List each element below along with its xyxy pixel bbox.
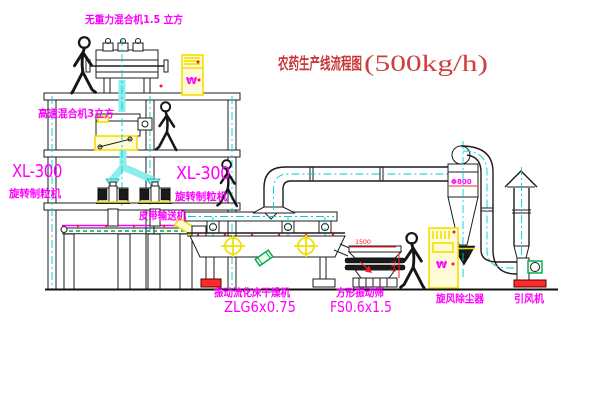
person-figure bbox=[401, 233, 424, 288]
granulator-left bbox=[96, 182, 130, 204]
dim-length: 1500 bbox=[355, 238, 371, 246]
label-granulator-left-name: 旋转制粒机 bbox=[8, 187, 61, 200]
drawing-canvas: ₩ bbox=[0, 0, 600, 403]
label-weightless-mixer: 无重力混合机1.5 立方 bbox=[84, 13, 183, 26]
discharge-chute-left bbox=[108, 209, 118, 226]
person-figure bbox=[72, 37, 96, 93]
cyclone-diameter-label: Φ800 bbox=[451, 178, 472, 186]
diagram-capacity: (500kg/h) bbox=[364, 51, 488, 76]
control-cabinet-top: ₩ bbox=[182, 55, 203, 95]
weightless-mixer bbox=[86, 39, 168, 94]
label-granulator-right-model: XL-300 bbox=[176, 163, 230, 184]
control-cabinet-bottom: ₩ bbox=[429, 228, 458, 288]
dim-height: 541 bbox=[390, 260, 398, 272]
person-figure bbox=[156, 102, 176, 150]
exhaust-duct bbox=[253, 167, 452, 213]
granulator-right bbox=[138, 182, 172, 204]
label-belt-conveyor: 皮带输送机 bbox=[138, 209, 186, 222]
dryer-legs bbox=[201, 257, 335, 287]
label-granulator-right-name: 旋转制粒机 bbox=[174, 190, 227, 203]
diagram-title: 农药生产线流程图 bbox=[277, 54, 362, 73]
cabinet-symbol: ₩ bbox=[436, 260, 447, 271]
label-fan: 引风机 bbox=[514, 292, 544, 305]
cabinet-symbol: ₩ bbox=[186, 76, 197, 87]
induced-draft-fan bbox=[514, 258, 546, 287]
mixer-top-drives bbox=[103, 39, 143, 52]
belt-conveyor bbox=[61, 225, 193, 289]
label-cyclone: 旋风除尘器 bbox=[435, 292, 484, 305]
label-high-speed-mixer: 高速混合机3立方 bbox=[38, 107, 114, 120]
label-dryer-model: ZLG6x0.75 bbox=[224, 298, 296, 316]
label-sieve-model: FS0.6x1.5 bbox=[330, 298, 392, 316]
label-granulator-left-model: XL-300 bbox=[12, 161, 62, 182]
square-vibrating-sieve: 1500 541 bbox=[345, 238, 405, 287]
cad-flow-diagram: ₩ bbox=[0, 0, 600, 403]
fluid-bed-dryer bbox=[185, 212, 354, 287]
